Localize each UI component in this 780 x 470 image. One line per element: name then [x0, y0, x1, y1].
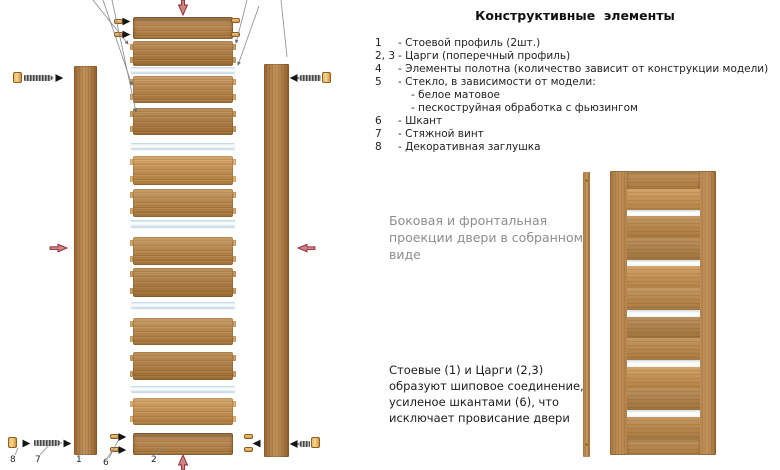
side-projection-door	[583, 172, 590, 457]
decorative-cap-icon	[322, 72, 331, 83]
tenon-tab	[233, 355, 236, 361]
door-inner-panels	[627, 171, 700, 455]
tenon-tab	[233, 401, 236, 407]
assembly-arrow-left	[298, 244, 315, 252]
assembly-arrow-down	[179, 0, 188, 15]
door-panel	[133, 352, 233, 380]
front-glass-strip	[627, 410, 700, 417]
front-glass-strip	[627, 310, 700, 317]
tenon-tab	[233, 416, 236, 422]
front-panel	[627, 388, 700, 410]
tenon-tab	[130, 371, 133, 377]
assembly-arrow-up	[179, 455, 188, 470]
front-panel	[627, 288, 700, 310]
callout-label: 6	[103, 458, 109, 468]
parts-list-row: 1- Стоевой профиль (2шт.)	[375, 37, 775, 50]
door-construction-diagram-page: Конструктивные элементы 1- Стоевой профи…	[0, 0, 780, 470]
tenon-tab	[130, 126, 133, 132]
parts-list-row: 4- Элементы полотна (количество зависит …	[375, 63, 775, 76]
tenon-tab	[130, 79, 133, 85]
door-panel	[133, 108, 233, 135]
joint-note: Стоевые (1) и Царги (2,3) образуют шипов…	[389, 362, 604, 426]
parts-list-row: 7- Стяжной винт	[375, 128, 775, 141]
parts-list-row: 6- Шкант	[375, 115, 775, 128]
tenon-tab	[233, 44, 236, 50]
page-title: Конструктивные элементы	[375, 8, 775, 23]
parts-legend: Конструктивные элементы 1- Стоевой профи…	[375, 8, 775, 154]
part-number: 6	[375, 115, 398, 128]
screw-cap-dot	[585, 179, 588, 182]
front-panel	[627, 338, 700, 360]
tenon-tab	[130, 336, 133, 342]
dowel-icon	[231, 18, 240, 23]
tenon-tab	[130, 256, 133, 262]
front-panel	[627, 216, 700, 238]
tenon-tab	[233, 57, 236, 63]
tenon-tab	[130, 44, 133, 50]
tenon-tab	[233, 79, 236, 85]
glass-strip	[131, 220, 235, 227]
callout-label: 8	[10, 455, 16, 465]
tension-screw-icon	[297, 441, 310, 447]
callout-label: 2	[151, 455, 157, 465]
left-stile	[74, 66, 97, 455]
tenon-tab	[130, 57, 133, 63]
door-panel	[133, 237, 233, 265]
decorative-cap-icon	[311, 437, 320, 448]
parts-list: 1- Стоевой профиль (2шт.)2, 3- Царги (по…	[375, 37, 775, 154]
front-rail	[627, 438, 700, 455]
screw-cap-dot	[585, 443, 588, 446]
door-panel	[133, 41, 233, 66]
tenon-tab	[233, 208, 236, 214]
part-description: - Стяжной винт	[398, 128, 775, 141]
front-panel	[627, 367, 700, 388]
tension-screw-icon	[34, 440, 62, 446]
tenon-tab	[233, 336, 236, 342]
part-sub-option: - белое матовое	[411, 89, 775, 102]
glass-strip	[131, 302, 235, 308]
dowel-icon	[244, 434, 253, 439]
dowel-icon	[244, 447, 253, 452]
tension-screw-icon	[297, 75, 321, 81]
callout-label: 1	[76, 455, 82, 465]
dowel-icon	[231, 32, 240, 37]
door-panel	[133, 189, 233, 217]
front-glass-strip	[627, 360, 700, 367]
part-sub-option: - пескоструйная обработка с фьюзингом	[411, 102, 775, 115]
dowel-icon	[110, 447, 119, 452]
tenon-tab	[233, 94, 236, 100]
front-panel	[627, 238, 700, 260]
door-panel	[133, 318, 233, 345]
door-panel	[133, 76, 233, 103]
front-rail	[627, 171, 700, 189]
door-panel	[133, 398, 233, 425]
part-description: - Шкант	[398, 115, 775, 128]
part-number: 7	[375, 128, 398, 141]
cross-rail	[133, 433, 233, 455]
projection-note: Боковая и фронтальная проекции двери в с…	[389, 212, 599, 263]
part-description: - Декоративная заглушка	[398, 141, 775, 154]
front-projection-door	[610, 171, 716, 455]
assembly-arrow-right	[50, 244, 67, 252]
right-stile	[264, 64, 289, 457]
parts-list-row: 2, 3- Царги (поперечный профиль)	[375, 50, 775, 63]
tenon-tab	[130, 321, 133, 327]
glass-strip	[131, 386, 235, 392]
part-description: - Царги (поперечный профиль)	[398, 50, 775, 63]
parts-list-row: 8- Декоративная заглушка	[375, 141, 775, 154]
tenon-tab	[130, 94, 133, 100]
tenon-tab	[130, 401, 133, 407]
front-panel	[627, 266, 700, 288]
tenon-tab	[130, 159, 133, 165]
tenon-tab	[233, 288, 236, 294]
front-panel	[627, 317, 700, 338]
tenon-tab	[233, 271, 236, 277]
cross-rail	[133, 17, 233, 39]
tenon-tab	[130, 240, 133, 246]
part-number: 5	[375, 76, 398, 89]
part-description: - Стоевой профиль (2шт.)	[398, 37, 775, 50]
tenon-tab	[130, 271, 133, 277]
dowel-icon	[110, 434, 119, 439]
tenon-tab	[233, 321, 236, 327]
tenon-tab	[130, 355, 133, 361]
part-number: 4	[375, 63, 398, 76]
tenon-tab	[130, 208, 133, 214]
tenon-tab	[233, 159, 236, 165]
decorative-cap-icon	[8, 437, 17, 448]
dowel-icon	[114, 32, 123, 37]
part-number: 1	[375, 37, 398, 50]
glass-strip	[131, 143, 235, 149]
decorative-cap-icon	[13, 72, 22, 83]
part-description: - Элементы полотна (количество зависит о…	[398, 63, 775, 76]
tenon-tab	[233, 192, 236, 198]
tenon-tab	[233, 240, 236, 246]
tenon-tab	[233, 176, 236, 182]
tenon-tab	[130, 176, 133, 182]
part-number: 2, 3	[375, 50, 398, 63]
part-description: - Стекло, в зависимости от модели:	[398, 76, 775, 89]
tenon-tab	[130, 416, 133, 422]
tenon-tab	[233, 111, 236, 117]
tenon-tab	[130, 192, 133, 198]
tenon-tab	[130, 111, 133, 117]
tenon-tab	[233, 256, 236, 262]
front-panel	[627, 189, 700, 210]
tenon-tab	[130, 288, 133, 294]
glass-strip	[131, 67, 235, 73]
tension-screw-icon	[24, 75, 54, 81]
door-panel	[133, 156, 233, 185]
front-panel	[627, 417, 700, 438]
tenon-tab	[233, 126, 236, 132]
parts-list-row: 5- Стекло, в зависимости от модели:	[375, 76, 775, 89]
callout-label: 7	[35, 455, 41, 465]
dowel-icon	[114, 19, 123, 24]
tenon-tab	[233, 371, 236, 377]
part-number: 8	[375, 141, 398, 154]
door-panel	[133, 268, 233, 297]
